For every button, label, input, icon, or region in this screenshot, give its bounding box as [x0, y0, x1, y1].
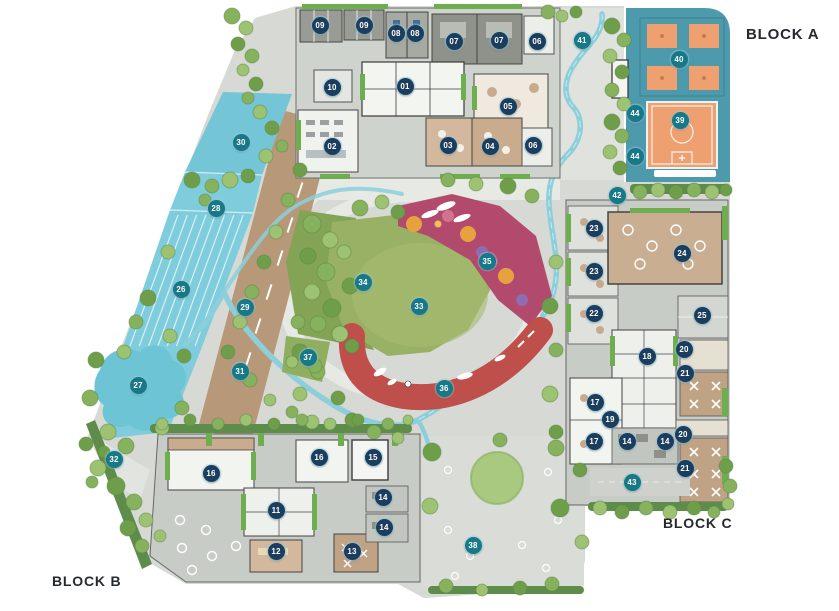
- marker-11: 11: [268, 502, 285, 519]
- marker-37: 37: [300, 349, 317, 366]
- marker-25: 25: [694, 307, 711, 324]
- marker-21: 21: [677, 460, 694, 477]
- marker-09: 09: [312, 17, 329, 34]
- marker-34: 34: [355, 274, 372, 291]
- marker-09: 09: [356, 17, 373, 34]
- marker-13: 13: [344, 543, 361, 560]
- marker-20: 20: [675, 426, 692, 443]
- marker-14: 14: [376, 519, 393, 536]
- marker-17: 17: [587, 394, 604, 411]
- marker-44: 44: [627, 105, 644, 122]
- marker-12: 12: [268, 543, 285, 560]
- marker-05: 05: [500, 98, 517, 115]
- marker-30: 30: [233, 134, 250, 151]
- marker-44: 44: [627, 148, 644, 165]
- marker-10: 10: [324, 79, 341, 96]
- block-a-label: BLOCK A: [746, 26, 819, 43]
- marker-14: 14: [619, 433, 636, 450]
- marker-36: 36: [436, 380, 453, 397]
- marker-16: 16: [311, 449, 328, 466]
- marker-41: 41: [574, 32, 591, 49]
- marker-07: 07: [491, 32, 508, 49]
- marker-22: 22: [586, 305, 603, 322]
- marker-14: 14: [657, 433, 674, 450]
- marker-08: 08: [407, 25, 424, 42]
- marker-19: 19: [602, 411, 619, 428]
- block-b-label: BLOCK B: [52, 573, 121, 589]
- marker-29: 29: [237, 299, 254, 316]
- marker-23: 23: [586, 263, 603, 280]
- marker-18: 18: [639, 348, 656, 365]
- block-c-label: BLOCK C: [663, 515, 732, 531]
- marker-16: 16: [203, 465, 220, 482]
- marker-38: 38: [465, 537, 482, 554]
- marker-14: 14: [375, 489, 392, 506]
- marker-39: 39: [672, 112, 689, 129]
- marker-31: 31: [232, 363, 249, 380]
- site-plan-canvas: 0102030405060607070808090910111213141414…: [0, 0, 839, 611]
- marker-08: 08: [388, 25, 405, 42]
- marker-07: 07: [446, 33, 463, 50]
- marker-03: 03: [440, 137, 457, 154]
- marker-42: 42: [609, 187, 626, 204]
- marker-20: 20: [676, 341, 693, 358]
- marker-02: 02: [324, 138, 341, 155]
- marker-35: 35: [479, 253, 496, 270]
- marker-28: 28: [208, 200, 225, 217]
- marker-32: 32: [106, 451, 123, 468]
- marker-04: 04: [482, 138, 499, 155]
- marker-17: 17: [586, 433, 603, 450]
- marker-33: 33: [411, 298, 428, 315]
- marker-23: 23: [586, 220, 603, 237]
- marker-27: 27: [130, 377, 147, 394]
- marker-01: 01: [397, 78, 414, 95]
- marker-15: 15: [365, 449, 382, 466]
- marker-26: 26: [173, 281, 190, 298]
- marker-40: 40: [671, 51, 688, 68]
- marker-24: 24: [674, 245, 691, 262]
- marker-06: 06: [529, 33, 546, 50]
- marker-43: 43: [624, 474, 641, 491]
- marker-06: 06: [525, 137, 542, 154]
- marker-21: 21: [677, 365, 694, 382]
